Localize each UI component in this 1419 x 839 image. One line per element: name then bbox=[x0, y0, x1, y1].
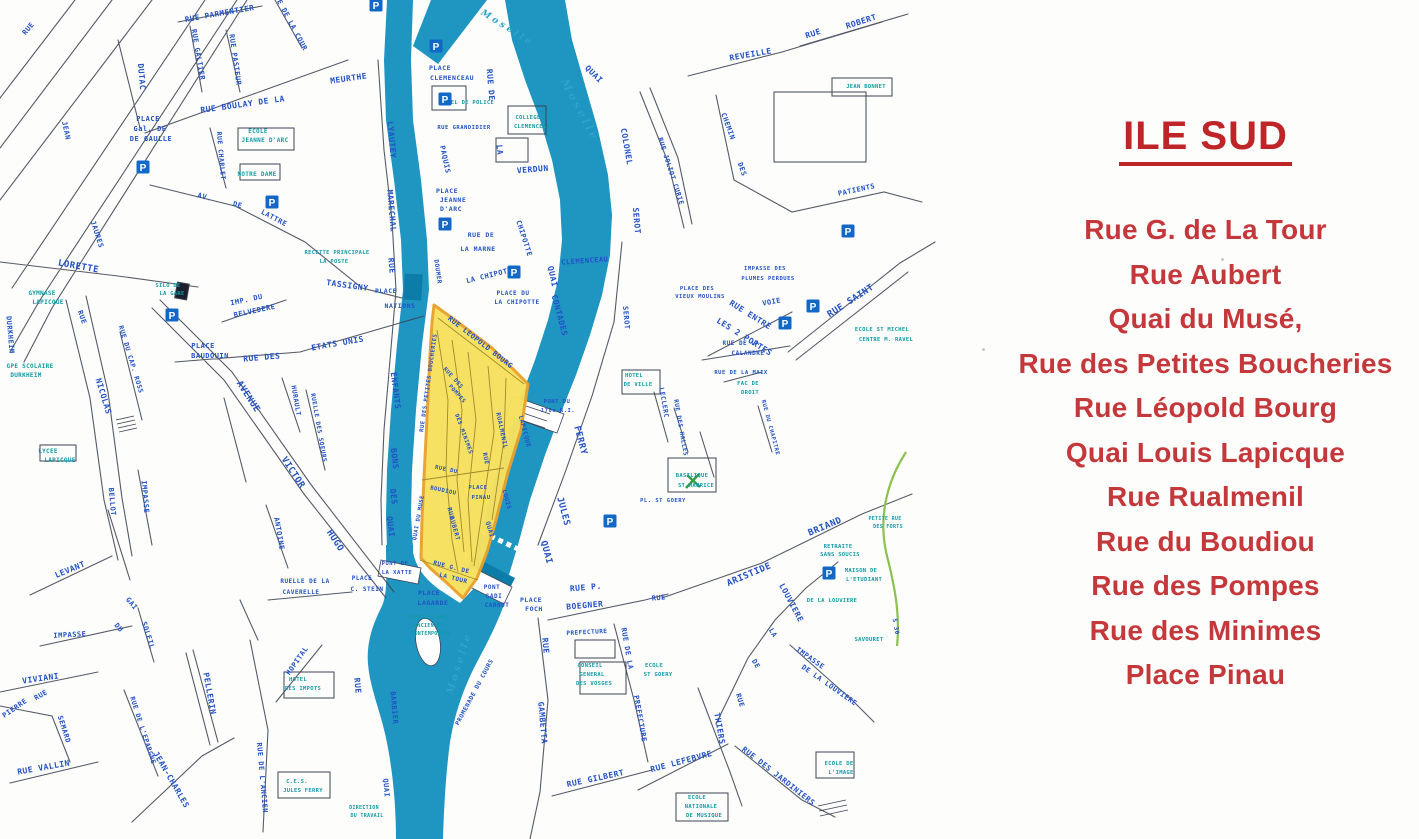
scan-speck bbox=[982, 348, 985, 351]
map-street-label: CONSEIL bbox=[577, 663, 603, 669]
map-street-label: DE VILLE bbox=[624, 382, 653, 388]
map-street-label: RUE PASTEUR bbox=[227, 33, 242, 86]
map-street-label: L'ETUDIANT bbox=[846, 577, 883, 583]
map-street-label: ETATS UNIS bbox=[311, 334, 365, 352]
svg-text:P: P bbox=[511, 268, 518, 279]
map-street-label: RUE DU CAP. ROSS bbox=[117, 324, 145, 394]
map-street-label: MAISON DE bbox=[845, 568, 878, 574]
map-street-label: DE bbox=[232, 200, 243, 210]
map-street-label: RUE DES HALLES bbox=[672, 399, 689, 457]
map-street-label: RUE bbox=[540, 637, 550, 654]
street-list-item: Rue du Boudiou bbox=[992, 520, 1419, 565]
parking-icon: P bbox=[137, 161, 150, 174]
map-street-label: RUE VALLIN bbox=[17, 758, 71, 776]
map-street-label: ECOLE bbox=[248, 128, 268, 135]
map-street-label: RETRAITE bbox=[824, 544, 853, 550]
map-street-label: COLLEGE bbox=[515, 115, 540, 121]
map-street-label: RUE GRANDIDIER bbox=[437, 125, 491, 131]
map-street-label: ST MAURICE bbox=[678, 483, 714, 489]
svg-text:P: P bbox=[169, 311, 176, 322]
parking-icon: P bbox=[439, 93, 452, 106]
map-street-label: BASILIQUE bbox=[676, 473, 709, 479]
map-street-label: JULES FERRY bbox=[283, 788, 323, 794]
parking-icon: P bbox=[807, 300, 820, 313]
map-street-label: Gal. DE bbox=[133, 125, 166, 133]
parking-icon: P bbox=[439, 218, 452, 231]
page-title: ILE SUD bbox=[1119, 114, 1292, 166]
map-street-label: DIRECTION bbox=[349, 805, 379, 811]
map-street-label: IMPASSE DES bbox=[744, 266, 786, 272]
street-list-item: Quai du Musé, bbox=[992, 297, 1419, 342]
map-street-label: LEVANT bbox=[54, 560, 87, 580]
map-street-label: QUAI bbox=[583, 64, 604, 85]
map-street-label: PLACE bbox=[191, 342, 215, 350]
map-street-label: ECOLE bbox=[688, 795, 706, 801]
map-street-label: ECOLE DE bbox=[825, 761, 854, 767]
parking-icon: P bbox=[842, 225, 855, 238]
svg-text:P: P bbox=[810, 302, 817, 313]
map-street-label: CLEMENCEAU bbox=[514, 124, 551, 130]
map-street-label: GPE SCOLAIRE bbox=[7, 363, 54, 370]
map-street-label: PONT DU bbox=[544, 399, 571, 405]
street-list-item: Rue Léopold Bourg bbox=[992, 386, 1419, 431]
map-street-label: DURKHEIM bbox=[4, 316, 15, 354]
map-street-label: DURKHEIM bbox=[10, 372, 41, 379]
map-street-label: AV. bbox=[197, 191, 213, 202]
map-street-label: DE LA LOUVIERE bbox=[800, 663, 859, 707]
map-street-label: NICOLAS bbox=[94, 377, 113, 415]
city-map: RUEDUTACRUE GALTIERRUE PARMENTIERRUE PAS… bbox=[0, 0, 940, 839]
map-street-label: QUAI bbox=[381, 778, 391, 797]
map-street-label: DROIT bbox=[741, 390, 759, 396]
street-list-item: Quai Louis Lapicque bbox=[992, 431, 1419, 476]
map-street-label: PL. ST GOERY bbox=[640, 498, 686, 504]
map-street-label: LAGARDE bbox=[418, 599, 449, 607]
map-street-label: ECOLE bbox=[645, 663, 663, 669]
map-street-label: SEMARD bbox=[56, 715, 72, 744]
map-street-label: PONT bbox=[484, 584, 500, 591]
map-street-label: JULES bbox=[554, 496, 571, 527]
parking-icon: P bbox=[370, 0, 383, 12]
map-street-label: CARNOT bbox=[485, 602, 510, 609]
map-street-label: RUE DES bbox=[243, 351, 281, 363]
map-street-label: PLACE bbox=[375, 287, 397, 295]
map-street-label: LA GARE bbox=[159, 291, 184, 297]
map-street-label: RUE DE LA bbox=[722, 340, 759, 347]
legend-panel: ILE SUD Rue G. de La TourRue AubertQuai … bbox=[940, 0, 1419, 839]
map-street-label: C.E.S. bbox=[286, 779, 308, 785]
map-street-label: RUE PARMENTIER bbox=[184, 3, 255, 24]
map-street-label: PIERRE bbox=[1, 697, 29, 720]
map-street-label: VIEUX MOULINS bbox=[675, 294, 725, 300]
map-street-label: JEAN bbox=[60, 121, 72, 141]
map-street-label: FERRY bbox=[571, 425, 588, 456]
map-street-label: AVENUE bbox=[234, 379, 262, 414]
map-street-label: LA MARNE bbox=[460, 245, 495, 253]
parking-icon: P bbox=[508, 266, 521, 279]
map-street-label: DOUMER bbox=[432, 259, 442, 284]
svg-text:P: P bbox=[442, 95, 449, 106]
parking-icon: P bbox=[779, 317, 792, 330]
map-street-label: RUE DES JARDINIERS bbox=[740, 745, 817, 808]
map-street-label: MUSEE D'ART bbox=[410, 615, 446, 621]
map-street-label: RUE bbox=[21, 21, 36, 37]
map-street-label: DE MUSIQUE bbox=[686, 813, 722, 819]
map-street-label: FAC DE bbox=[737, 381, 759, 387]
map-street-label: D'ARC bbox=[440, 205, 462, 213]
map-street-label: HOTEL bbox=[289, 677, 307, 683]
map-street-label: RUE bbox=[76, 309, 88, 325]
map-street-label: DE GAULLE bbox=[130, 135, 172, 143]
map-street-label: PELLERIN bbox=[201, 672, 217, 715]
map-street-label: HOTEL bbox=[625, 373, 643, 379]
map-street-label: NOTRE DAME bbox=[237, 171, 276, 178]
map-street-label: PREFECTURE bbox=[566, 628, 607, 637]
street-list-item: Rue des Minimes bbox=[992, 609, 1419, 654]
map-street-label: VERDUN bbox=[516, 164, 549, 176]
map-street-label: DE bbox=[750, 658, 762, 670]
map-street-label: JEANNE D'ARC bbox=[242, 137, 289, 144]
map-street-label: ECOLE ST MICHEL bbox=[855, 327, 910, 333]
map-street-label: DES IMPOTS bbox=[285, 686, 321, 692]
map-street-label: QUAI bbox=[546, 265, 559, 288]
map-street-label: CLEMENCEAU bbox=[430, 74, 474, 82]
street-list-item: Rue des Pompes bbox=[992, 564, 1419, 609]
map-street-label: DES bbox=[736, 161, 748, 177]
map-street-label: QUAI bbox=[538, 540, 554, 565]
svg-text:P: P bbox=[826, 569, 833, 580]
map-street-label: DE LA LOUVIERE bbox=[807, 598, 858, 604]
map-street-label: PLACE bbox=[429, 64, 451, 72]
street-list: Rue G. de La TourRue AubertQuai du Musé,… bbox=[992, 208, 1419, 698]
scanned-map-page: RUEDUTACRUE GALTIERRUE PARMENTIERRUE PAS… bbox=[0, 0, 1419, 839]
map-street-label: ST GOERY bbox=[644, 672, 673, 678]
map-street-label: HUGO bbox=[324, 528, 345, 553]
svg-text:P: P bbox=[845, 227, 852, 238]
parking-icon: P bbox=[604, 515, 617, 528]
map-street-label: RUE DE bbox=[485, 68, 497, 101]
map-street-label: RUE bbox=[804, 27, 822, 40]
map-street-label: JEAN BONNET bbox=[846, 84, 886, 90]
river-connector bbox=[413, 0, 487, 64]
map-street-label: RUE P. bbox=[569, 582, 602, 594]
parking-icon: P bbox=[266, 196, 279, 209]
map-street-label: LORETTE bbox=[57, 259, 100, 276]
map-street-label: DES VOSGES bbox=[576, 681, 612, 687]
street-list-item: Rue G. de La Tour bbox=[992, 208, 1419, 253]
svg-text:P: P bbox=[269, 198, 276, 209]
map-street-label: IMPASSE bbox=[140, 480, 151, 514]
map-street-label: GYMNASE bbox=[28, 290, 55, 297]
map-street-label: RUE DE LA bbox=[619, 627, 634, 670]
svg-text:P: P bbox=[442, 220, 449, 231]
map-street-label: RUE DU CHAPITRE bbox=[760, 399, 781, 456]
map-street-label: SADI bbox=[486, 593, 502, 600]
map-street-label: RUE DE LA COUR bbox=[271, 0, 309, 52]
street-list-item: Rue Aubert bbox=[992, 253, 1419, 298]
svg-text:P: P bbox=[433, 42, 440, 53]
map-street-label: BRIAND bbox=[807, 516, 844, 539]
map-street-label: JEANNE bbox=[440, 196, 466, 204]
map-street-label: DU TRAVAIL bbox=[350, 813, 383, 819]
map-street-label: SEROT bbox=[621, 306, 631, 330]
map-street-label: LAPICQUE bbox=[44, 457, 75, 464]
map-street-label: GENERAL bbox=[579, 672, 605, 678]
map-street-label: DUTAC bbox=[136, 63, 147, 90]
map-street-label: COLONEL bbox=[619, 127, 634, 165]
map-street-label: PONT DE bbox=[382, 561, 409, 567]
map-street-label: PLACE bbox=[436, 187, 458, 195]
map-street-label: PLACE DES bbox=[680, 286, 714, 292]
map-street-label: SAVOURET bbox=[855, 637, 884, 643]
map-street-label: SANS SOUCIS bbox=[820, 552, 860, 558]
map-street-label: NATIONALE bbox=[685, 804, 718, 810]
scan-speck bbox=[1221, 258, 1224, 261]
parking-icon: P bbox=[430, 40, 443, 53]
map-street-label: IMPASSE bbox=[53, 630, 86, 640]
map-street-label: C. STEIN bbox=[351, 586, 384, 593]
map-street-label: GAI bbox=[124, 596, 139, 612]
svg-text:P: P bbox=[140, 163, 147, 174]
map-street-label: PINAU bbox=[471, 495, 490, 501]
map-street-label: CHIPOTTE bbox=[514, 219, 533, 257]
map-street-label: RUE SAINT bbox=[826, 283, 876, 320]
map-street-label: LECLERC bbox=[657, 387, 670, 419]
street-list-item: Place Pinau bbox=[992, 653, 1419, 698]
map-street-label: HURAULT bbox=[289, 385, 302, 417]
map-street-label: SILO DE bbox=[155, 283, 180, 289]
map-street-label: CENTRE M. RAVEL bbox=[859, 337, 914, 343]
map-street-label: RUE bbox=[386, 257, 396, 274]
map-street-label: RUE bbox=[734, 692, 746, 708]
svg-text:P: P bbox=[782, 319, 789, 330]
map-street-label: JEAN-CHARLES bbox=[151, 750, 191, 810]
map-street-label: RUE BOULAY DE LA bbox=[200, 94, 285, 115]
map-street-label: SOLEIL bbox=[140, 621, 156, 650]
map-street-label: LYCEE bbox=[38, 448, 58, 455]
map-street-label: ANTOINE bbox=[272, 517, 286, 551]
map-street-label: VOIE bbox=[762, 296, 782, 307]
map-street-label: LA POSTE bbox=[320, 259, 349, 265]
street-list-item: Rue Rualmenil bbox=[992, 475, 1419, 520]
map-street-label: 170e R.I. bbox=[541, 408, 575, 414]
map-street-label: RUE GALTIER bbox=[190, 28, 207, 81]
map-street-label: MEURTHE bbox=[330, 71, 368, 85]
map-street-label: RUE DE LA MAIX bbox=[714, 370, 768, 376]
map-street-label: CAVERELLE bbox=[282, 589, 319, 596]
map-street-label: CALANDRE bbox=[732, 350, 765, 357]
map-street-label: LA bbox=[767, 627, 779, 639]
map-street-label: LYAUTEY bbox=[385, 121, 397, 159]
map-street-label: RUELLE DE LA bbox=[280, 578, 329, 585]
map-street-label: DU bbox=[112, 622, 124, 634]
map-street-label: JAURES bbox=[89, 220, 105, 249]
map-street-label: DES FORTS bbox=[873, 524, 903, 530]
map-street-label: RUE GILBERT bbox=[566, 768, 625, 789]
parking-icon: P bbox=[823, 567, 836, 580]
map-street-label: ANCIEN ET bbox=[414, 623, 444, 629]
map-street-label: BAUDOUIN bbox=[191, 352, 229, 360]
park-boundary bbox=[883, 452, 906, 646]
map-street-label: RUE bbox=[352, 677, 362, 694]
map-street-label: PLACE DU bbox=[497, 290, 530, 297]
svg-text:P: P bbox=[373, 1, 380, 12]
parking-icon: P bbox=[166, 309, 179, 322]
map-street-label: CONTEMPORAIN bbox=[411, 631, 451, 637]
map-street-label: THIERS bbox=[712, 712, 726, 745]
map-street-label: LA CHIPOTTE bbox=[494, 299, 539, 306]
map-street-label: PLUMES PERDUES bbox=[741, 276, 794, 282]
map-street-label: CHEMIN bbox=[719, 112, 736, 141]
map-street-label: RECETTE PRINCIPALE bbox=[304, 250, 369, 256]
map-street-label: PLACE bbox=[352, 575, 373, 582]
map-street-label: PREFECTURE bbox=[632, 695, 648, 743]
map-street-label: TASSIGNY bbox=[326, 278, 369, 293]
map-street-label: RUE LEFEBVRE bbox=[649, 749, 713, 774]
map-street-label: PLACE bbox=[520, 596, 542, 604]
map-street-label: RUE bbox=[33, 688, 49, 702]
map-street-label: LAPICQUE bbox=[32, 299, 63, 306]
map-street-label: S 30 bbox=[891, 618, 901, 635]
map-street-label: LATTRE bbox=[260, 208, 289, 228]
map-street-label: RUE bbox=[651, 593, 666, 602]
map-street-label: RUELLE DES SOEURS bbox=[309, 393, 328, 463]
map-street-label: PAQUIS bbox=[438, 145, 452, 174]
svg-text:P: P bbox=[607, 517, 614, 528]
river-shadow bbox=[403, 274, 422, 301]
map-street-label: L'IMAGE bbox=[828, 770, 853, 776]
map-street-label: RUE CHARLET bbox=[215, 131, 227, 180]
map-street-label: LOUVIERE bbox=[777, 582, 805, 624]
map-street-label: ARISTIDE bbox=[725, 561, 773, 589]
street-list-item: Rue des Petites Boucheries bbox=[992, 342, 1419, 387]
map-street-label: RUE DE bbox=[468, 231, 494, 239]
map-street-label: PLACE bbox=[136, 115, 160, 123]
map-street-label: SEROT bbox=[631, 207, 642, 234]
map-street-label: PETITE RUE bbox=[868, 516, 901, 522]
map-street-label: LA bbox=[495, 144, 505, 155]
map-street-label: QUAI bbox=[385, 516, 397, 538]
map-street-label: PLACE bbox=[418, 589, 440, 597]
map-street-label: NATIONS bbox=[385, 302, 416, 310]
map-street-label: LA XATTE bbox=[382, 570, 413, 576]
map-street-label: PLACE bbox=[468, 485, 487, 491]
map-street-label: FOCH bbox=[525, 605, 543, 613]
